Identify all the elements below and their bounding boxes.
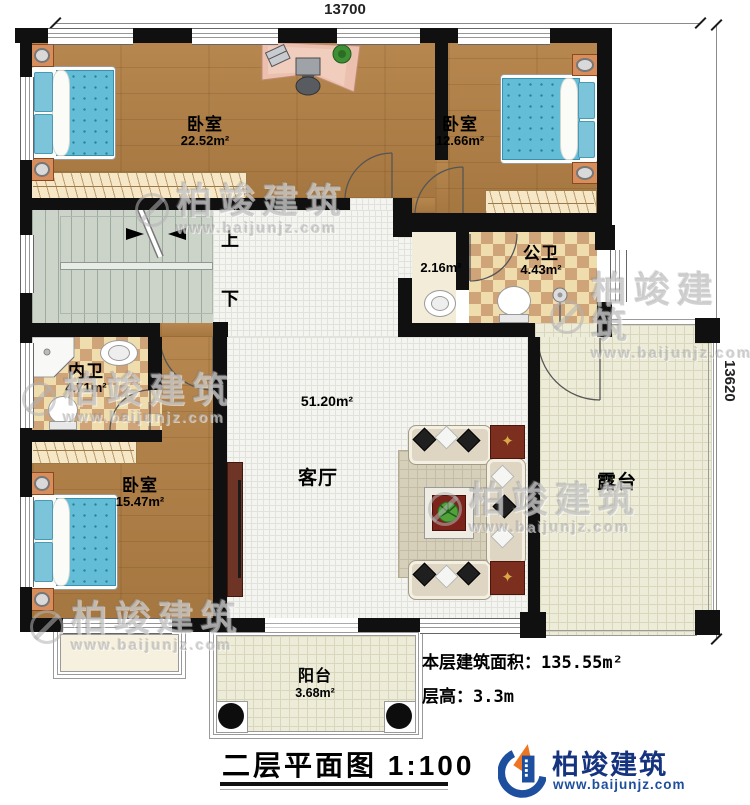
bay-window-slider	[63, 618, 172, 634]
floor-plan-page: ✦ ✦	[0, 0, 750, 805]
room-label-terrace: 露台	[597, 472, 637, 493]
wall-segment	[20, 323, 160, 337]
washbasin-bowl	[431, 296, 449, 311]
wall-segment	[20, 428, 32, 497]
pillow	[34, 500, 53, 540]
wall-segment	[398, 323, 535, 337]
wardrobe	[485, 190, 597, 215]
nightstand	[572, 54, 598, 76]
floor-area-note: 本层建筑面积：135.55m²	[422, 648, 623, 673]
wall-segment	[597, 43, 612, 225]
room-label-public-bathroom: 公卫 4.43m²	[520, 244, 561, 278]
wall-segment	[172, 618, 265, 632]
washbasin-bowl	[108, 345, 130, 361]
coffee-table-top	[432, 495, 466, 531]
nightstand	[30, 588, 54, 611]
window	[337, 28, 420, 45]
wall-segment	[213, 322, 228, 337]
stairs-up-label: 上	[221, 226, 239, 252]
window	[192, 28, 278, 45]
pillar	[695, 610, 720, 635]
alcove-threshold	[398, 237, 412, 278]
living-room-area-label: 51.20m²	[301, 394, 353, 410]
wall-segment	[32, 430, 162, 442]
room-label-bedroom-top-left: 卧室 22.52m²	[181, 115, 229, 149]
company-logo-website: www.baijunjz.com	[553, 777, 686, 792]
toilet	[497, 286, 531, 316]
bed-sheet	[560, 78, 578, 160]
wall-segment	[278, 28, 337, 43]
tv-screen	[238, 480, 241, 578]
nightstand	[30, 472, 54, 495]
stairs-down-label: 下	[221, 285, 239, 311]
wall-segment	[32, 198, 350, 210]
terrace-railing-top	[612, 319, 696, 325]
dimension-top: 13700	[324, 1, 366, 18]
wall-segment	[398, 213, 612, 232]
terrace-threshold	[535, 323, 600, 337]
wardrobe	[30, 172, 247, 200]
bedroom3-threshold	[160, 323, 213, 337]
bedroom1-threshold	[350, 198, 393, 210]
company-logo-icon	[498, 742, 546, 798]
wall-segment	[213, 337, 227, 632]
toilet	[48, 396, 78, 424]
wall-segment	[133, 28, 192, 43]
wall-segment	[550, 28, 612, 43]
pillow	[34, 114, 53, 154]
window	[458, 28, 550, 45]
wall-segment	[20, 618, 63, 632]
window	[20, 497, 34, 587]
title-underline-thin	[220, 789, 448, 790]
room-label-bedroom-top-right: 卧室 12.66m²	[436, 115, 484, 149]
corridor-floor	[213, 210, 398, 337]
pillow	[34, 542, 53, 582]
nightstand	[30, 44, 54, 67]
pillow	[34, 72, 53, 112]
pillow	[578, 82, 595, 119]
toilet-tank	[499, 314, 529, 323]
window	[48, 28, 133, 45]
balcony-sliding-door	[265, 618, 358, 632]
window	[20, 343, 34, 428]
wall-segment	[20, 28, 32, 77]
wall-segment	[148, 337, 162, 390]
window	[420, 618, 527, 634]
stairs-center-rail	[60, 262, 213, 270]
side-table: ✦	[490, 561, 525, 595]
balcony-pillar	[386, 703, 412, 729]
bay-window	[60, 634, 179, 672]
side-table: ✦	[490, 425, 525, 459]
wood-patch	[412, 198, 435, 213]
wall-segment	[420, 28, 458, 43]
pillar	[520, 612, 546, 638]
terrace-railing-bottom	[541, 630, 697, 636]
room-label-private-bathroom: 内卫 4.71m²	[65, 362, 106, 396]
wall-segment	[358, 618, 420, 632]
window	[610, 250, 627, 302]
dimension-right: 13620	[721, 360, 738, 402]
window	[20, 77, 34, 160]
door-threshold-wood	[435, 160, 448, 215]
room-label-living-room: 客厅	[298, 468, 338, 489]
floor-height-note: 层高：3.3m	[422, 682, 514, 707]
bed-sheet	[52, 498, 70, 586]
wall-segment	[600, 323, 612, 337]
room-label-wash-alcove: 2.16m²	[420, 261, 461, 276]
window	[20, 235, 34, 293]
pillow	[578, 121, 595, 158]
nightstand	[572, 162, 598, 184]
terrace-railing-right	[708, 321, 714, 633]
wall-segment	[20, 160, 32, 235]
plan-title: 二层平面图 1:100	[222, 744, 474, 784]
dimension-line-top	[55, 23, 700, 24]
bed-sheet	[52, 70, 70, 156]
room-label-bedroom-bottom-left: 卧室 15.47m²	[116, 476, 164, 510]
toilet-tank	[49, 421, 77, 430]
title-underline	[220, 782, 448, 786]
pillar	[695, 318, 720, 343]
balcony-pillar	[218, 703, 244, 729]
private-bath-threshold	[148, 390, 162, 430]
nightstand	[30, 158, 54, 181]
room-label-balcony: 阳台 3.68m²	[295, 668, 335, 700]
wall-segment	[528, 337, 540, 620]
